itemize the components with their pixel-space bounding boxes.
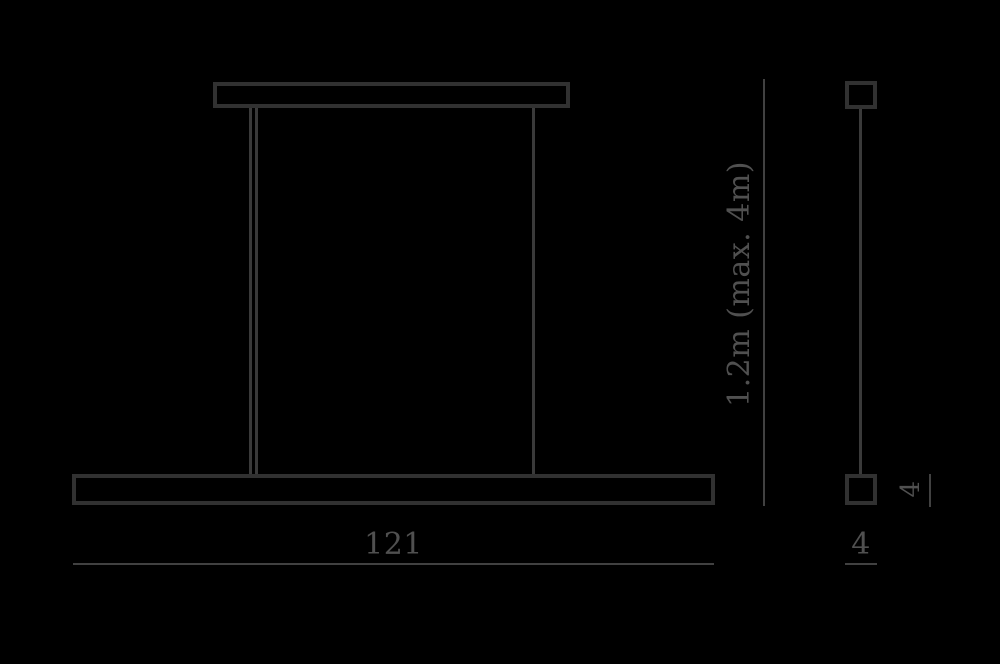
side-height-dimension-label: 4 [898,467,924,511]
canopy-outline [213,82,570,108]
side-width-dimension-label: 4 [811,529,911,561]
height-dimension-line [763,79,765,506]
height-dimension-label: 1.2m (max. 4m) [722,64,758,504]
suspension-wire-left [249,108,258,474]
side-canopy-outline [845,81,877,109]
width-dimension-line [73,563,714,565]
side-fixture-outline [845,474,877,505]
side-height-dimension-line [929,474,931,507]
side-suspension-wire [859,109,862,474]
fixture-bar-outline [72,474,715,505]
width-dimension-label: 121 [73,529,714,561]
side-width-dimension-line [845,563,877,565]
dimension-drawing: 121 1.2m (max. 4m) 4 4 [0,0,1000,664]
suspension-wire-right [532,108,535,474]
